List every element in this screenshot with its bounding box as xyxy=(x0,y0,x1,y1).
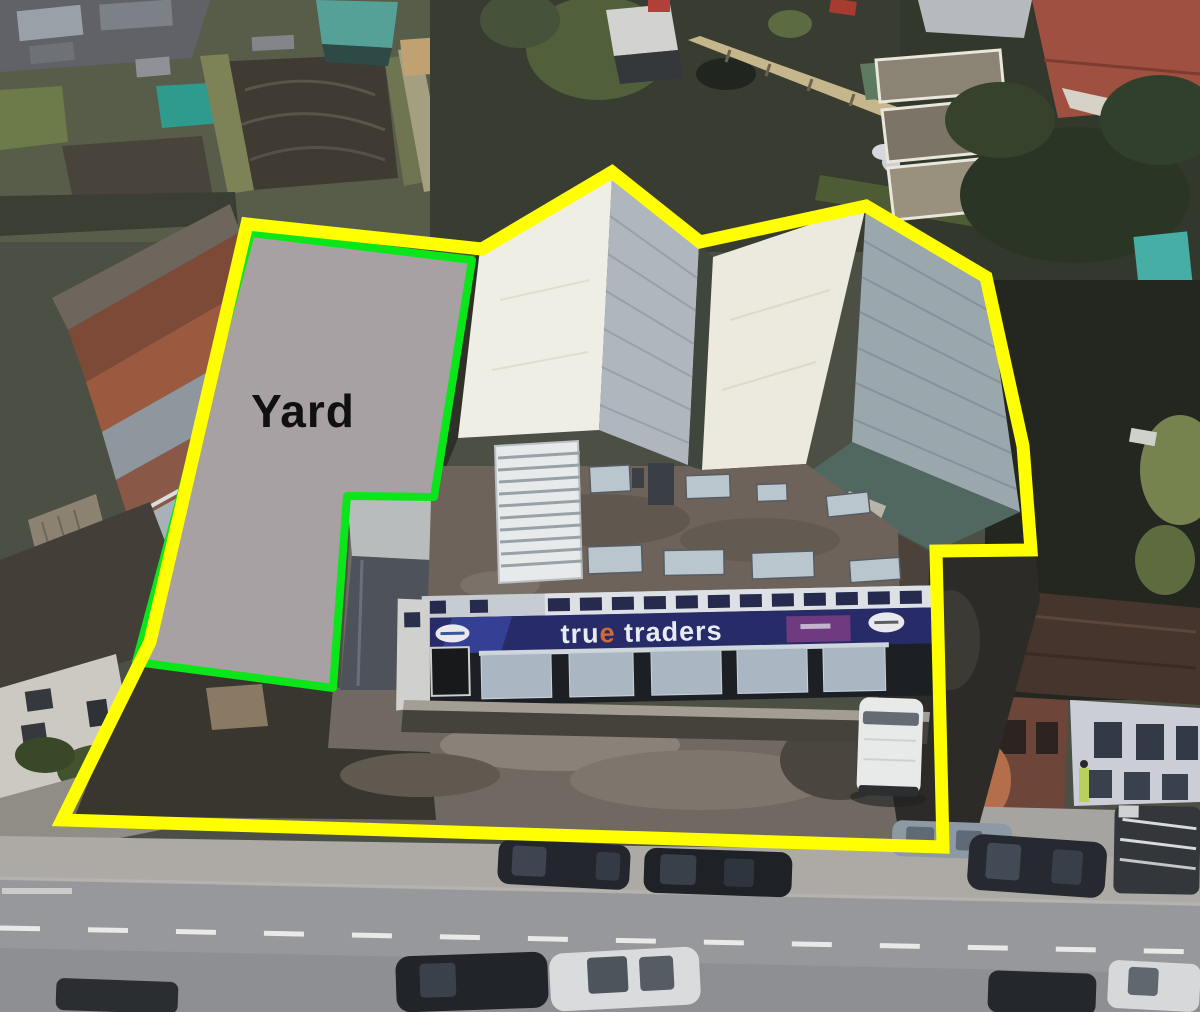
ladder-van xyxy=(1113,805,1200,894)
white-van xyxy=(850,697,930,809)
white-car xyxy=(549,946,702,1012)
trade-unit-building: true traders xyxy=(394,178,1020,808)
storefront-facade: true traders xyxy=(394,585,936,710)
roller-shutters xyxy=(481,646,886,698)
storefront-sign: true traders xyxy=(560,616,723,649)
annotated-aerial-photo: true traders xyxy=(0,0,1200,1012)
yard-label: Yard xyxy=(251,385,355,437)
